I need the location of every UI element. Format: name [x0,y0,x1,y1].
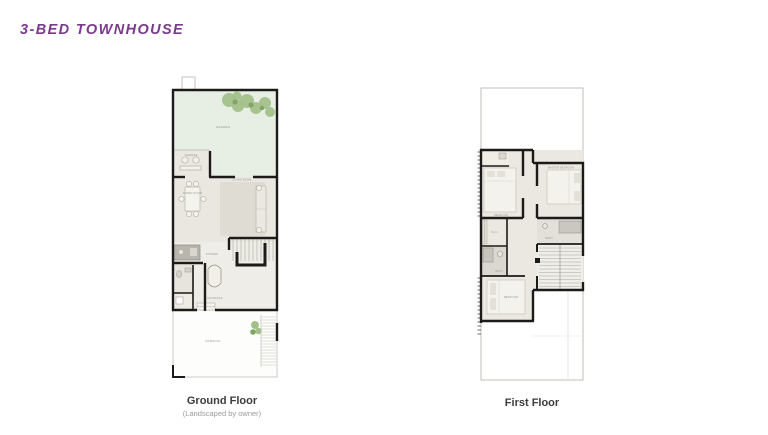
sink [499,153,506,159]
bedroom-1-label: BEDROOM [494,214,508,217]
powder-room [173,265,193,293]
side-walkway [261,315,276,367]
gate-outline [182,77,195,90]
first-floor-plan: BEDROOM MASTER BEDROOM W.I.C BATH BATH B… [475,86,589,409]
terrace-label: TERRACE [184,154,197,157]
bed-1 [484,168,516,212]
dining-label: DINING ROOM [183,192,202,195]
ground-floor-caption: Ground Floor [165,395,279,407]
washer [176,297,183,304]
kitchen-label: KITCHEN [206,253,218,256]
brochure-page: 3-BED TOWNHOUSE [0,0,768,435]
stairs-post [535,258,540,263]
wic-shelves [482,220,487,244]
first-floor-svg: BEDROOM MASTER BEDROOM W.I.C BATH BATH B… [475,86,589,382]
entry-foyer-arch [208,265,221,287]
bath-2-label: BATH [545,237,552,240]
master-bedroom-label: MASTER BEDROOM [548,167,574,170]
page-title: 3-BED TOWNHOUSE [20,22,184,38]
first-floor-caption: First Floor [475,397,589,409]
bedroom-2-label: BEDROOM [504,296,518,299]
ground-floor-plan: GARDEN TERRACE LIVING ROOM DINING ROOM K… [165,75,279,418]
ground-floor-svg: GARDEN TERRACE LIVING ROOM DINING ROOM K… [165,75,279,387]
garden-label: GARDEN [216,125,230,129]
bed-master [547,170,581,204]
living-label: LIVING ROOM [233,179,252,182]
ground-floor-subcaption: (Landscaped by owner) [165,409,279,418]
bath-1-label: BATH [495,270,502,273]
kitchen-counter [174,245,200,260]
living-set [220,182,266,236]
entrance-label: ENTRANCE [207,297,222,300]
wic-label: W.I.C [491,231,498,234]
parking-label: PARKING [205,339,220,343]
